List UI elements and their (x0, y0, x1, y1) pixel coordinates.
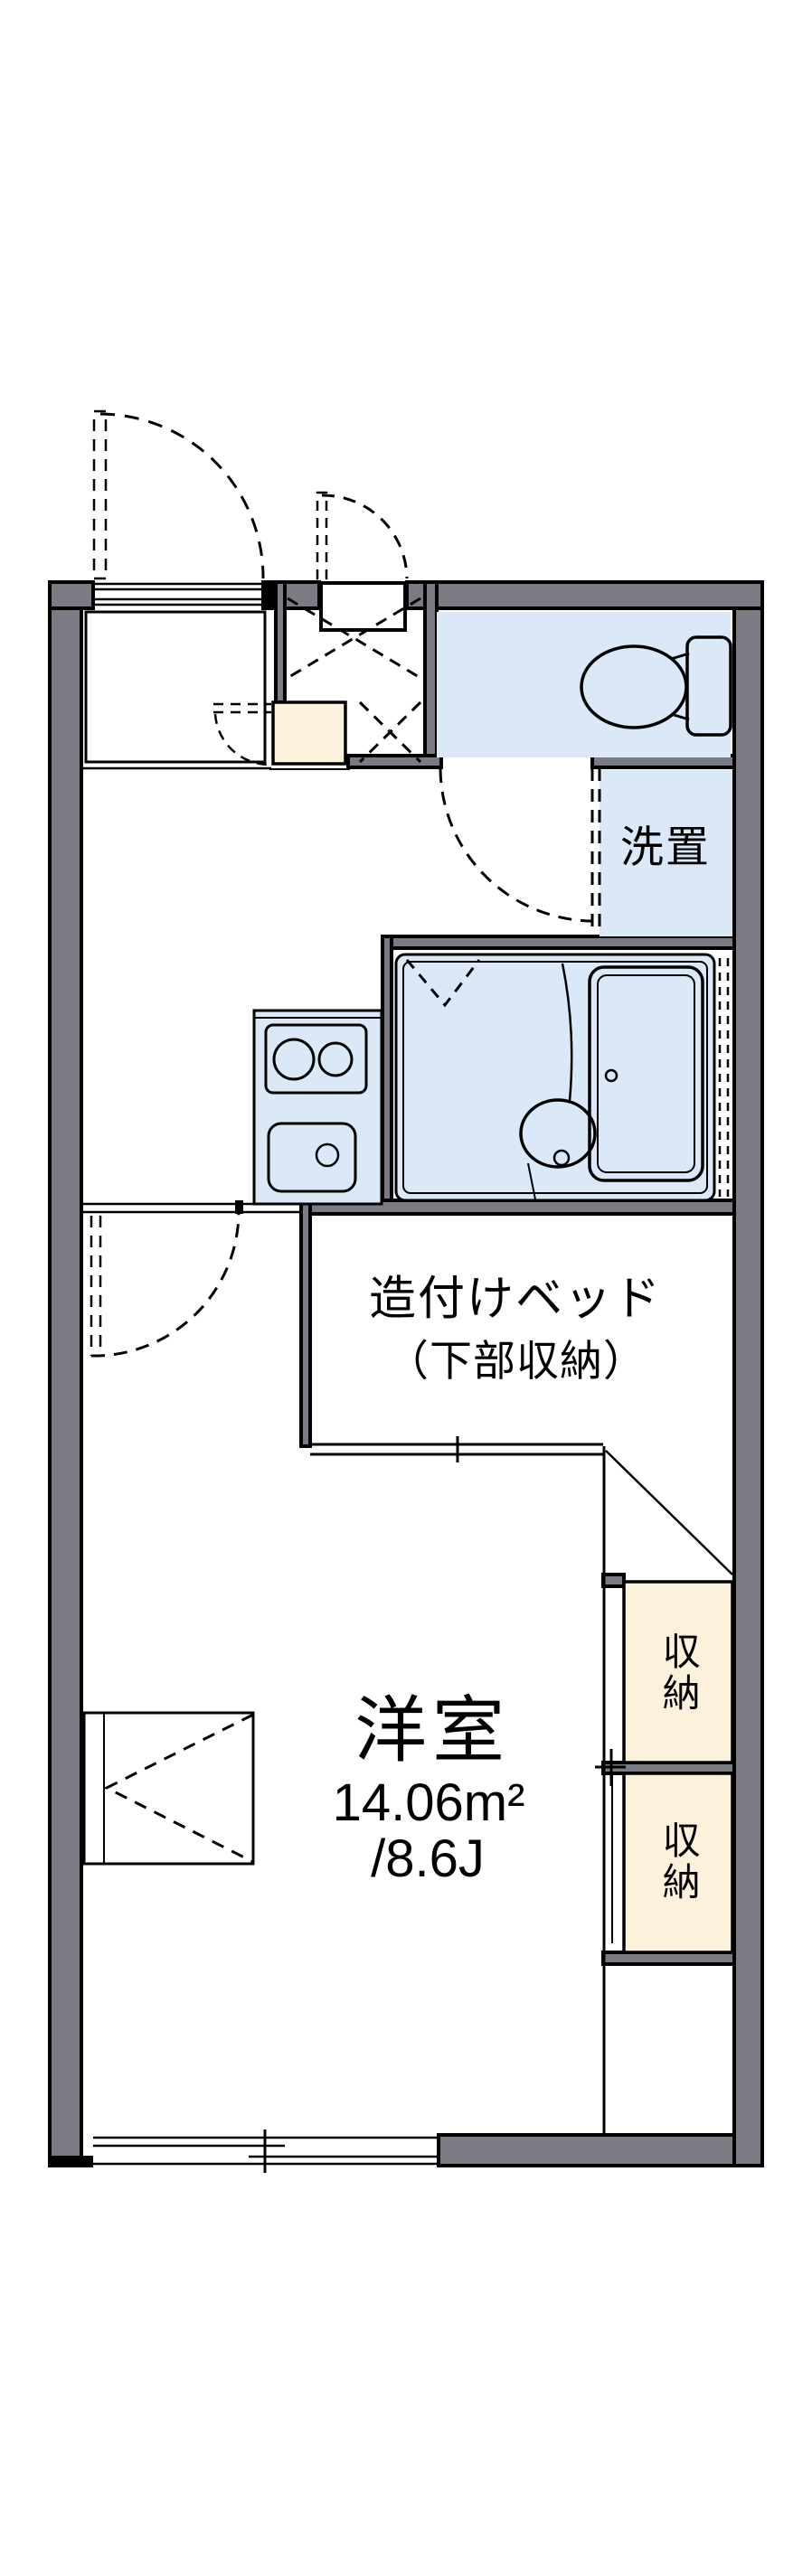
storage-upper-label: 収納 (657, 1631, 699, 1715)
kitchen-unit (254, 1011, 382, 1204)
bed-label-line1: 造付けベッド (369, 1274, 662, 1325)
wall-genkan-left (276, 582, 285, 702)
toilet-tank (687, 637, 731, 735)
wall-storage-notch-top (603, 1575, 624, 1586)
furniture-door-dashes (107, 1715, 253, 1862)
wall-bottom (439, 2135, 734, 2166)
wall-bath-top (382, 936, 734, 948)
wall-bed-left (301, 1200, 310, 1446)
exterior-door-arc-left (100, 414, 263, 578)
wall-left (50, 582, 81, 2165)
wall-top-left (50, 582, 93, 608)
shoe-cabinet (273, 702, 345, 764)
entrance-door-leaf (321, 583, 405, 630)
bed-label-line2: （下部収納） (386, 1338, 647, 1385)
windows (93, 584, 437, 2173)
furniture-outline (84, 1713, 253, 1864)
main-room-size: /8.6J (371, 1830, 485, 1888)
bath-unit (396, 954, 714, 1200)
window-top (93, 584, 265, 605)
wall-kitchen-bath (382, 936, 392, 1208)
exterior-door-leaf-left (94, 411, 106, 578)
floorplan-page: 造付けベッド （下部収納） 洋室 14.06m² /8.6J 洗置 収納 収納 (0, 0, 812, 2576)
wall-storage-bottom (603, 1952, 734, 1964)
washer-space-label: 洗置 (620, 825, 711, 873)
genkan-x-4 (360, 702, 420, 762)
entrance-door-leaf-open (317, 493, 326, 578)
toilet-door-arc (440, 769, 592, 921)
storage-lower-label: 収納 (657, 1820, 699, 1904)
entry-room-outline (86, 612, 265, 762)
wall-toilet-left (425, 582, 437, 757)
main-room-area: 14.06m² (333, 1774, 525, 1832)
wall-right (734, 582, 762, 2166)
shoe-door-arc (215, 714, 270, 765)
wall-cap-bottom-left (48, 2156, 93, 2167)
room-door-arc (91, 1213, 239, 1356)
window-bottom (93, 2129, 437, 2173)
entrance-door-arc (322, 495, 407, 578)
shelf-diagonal (606, 1451, 732, 1575)
wall-top-right (407, 582, 762, 608)
main-room-label: 洋室 (354, 1691, 510, 1771)
